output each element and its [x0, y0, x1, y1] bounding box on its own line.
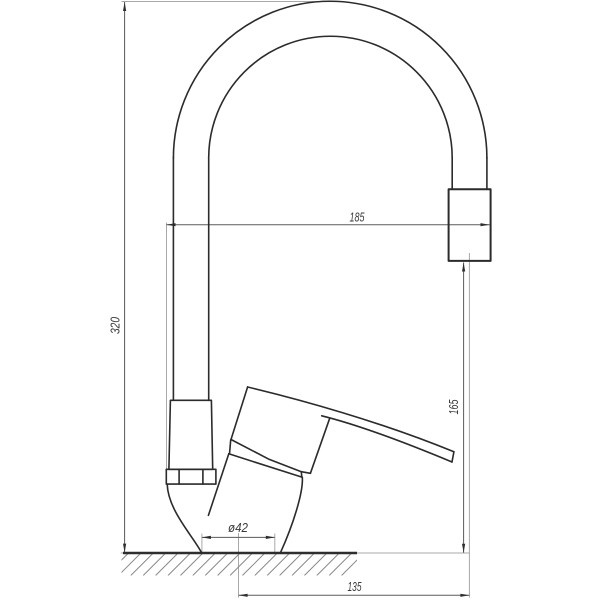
svg-text:135: 135	[348, 579, 362, 594]
svg-text:165: 165	[446, 399, 461, 415]
svg-text:185: 185	[350, 210, 366, 225]
svg-text:320: 320	[108, 316, 123, 334]
svg-text:ø42: ø42	[228, 520, 249, 535]
